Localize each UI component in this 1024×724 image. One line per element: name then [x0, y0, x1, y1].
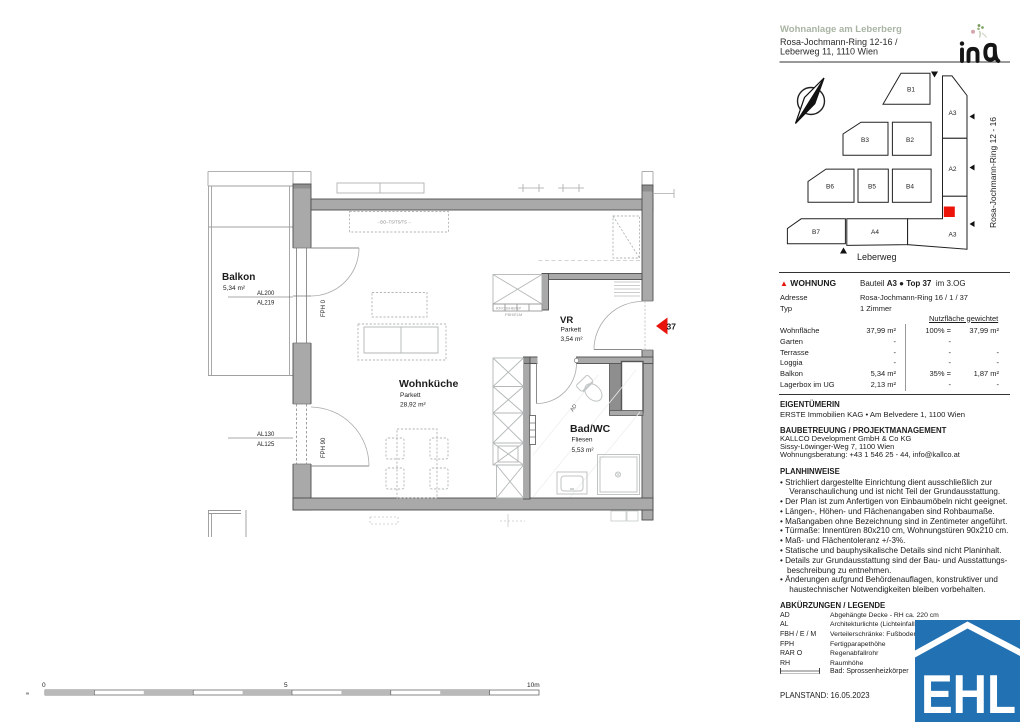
svg-text:B3: B3 [861, 137, 869, 144]
svg-text:Parkett: Parkett [400, 392, 421, 399]
svg-text:Balkon: Balkon [222, 272, 255, 283]
svg-text:A3: A3 [949, 110, 957, 117]
svg-text:5: 5 [284, 682, 288, 689]
svg-text:FBH/E1M: FBH/E1M [505, 312, 522, 317]
svg-text:37: 37 [667, 322, 677, 332]
svg-text:FPH 90: FPH 90 [321, 437, 327, 458]
svg-text:B5: B5 [868, 184, 876, 191]
svg-text:Rosa-Jochmann-Ring 12 - 16: Rosa-Jochmann-Ring 12 - 16 [988, 117, 998, 228]
svg-text:Parkett: Parkett [561, 327, 582, 334]
svg-text:FPH 0: FPH 0 [321, 299, 327, 317]
svg-text:Wohnanlage am Leberberg: Wohnanlage am Leberberg [780, 24, 902, 35]
svg-text:AL200: AL200 [257, 291, 275, 297]
svg-text:AL130: AL130 [257, 432, 275, 438]
svg-text:AL219: AL219 [257, 301, 275, 307]
svg-text:A2: A2 [949, 166, 957, 173]
svg-text:VR: VR [560, 315, 573, 326]
svg-text:10m: 10m [527, 682, 540, 689]
svg-text:Fliesen: Fliesen [572, 437, 593, 444]
svg-text:Bad/WC: Bad/WC [570, 423, 611, 435]
svg-text:B6: B6 [826, 184, 834, 191]
svg-text:Leberweg: Leberweg [857, 252, 897, 262]
svg-text:A4: A4 [871, 229, 879, 236]
svg-text:3,54 m²: 3,54 m² [561, 336, 584, 343]
svg-text:A3: A3 [949, 232, 957, 239]
svg-text:28,92 m²: 28,92 m² [400, 402, 426, 409]
svg-text:5,53 m²: 5,53 m² [572, 447, 595, 454]
svg-text:→BO–TS/TS/TS→: →BO–TS/TS/TS→ [376, 220, 411, 225]
svg-text:B7: B7 [812, 229, 820, 236]
svg-text:Leberweg 11, 1110 Wien: Leberweg 11, 1110 Wien [780, 47, 878, 57]
svg-text:AD: AD [570, 403, 579, 413]
svg-text:0: 0 [42, 682, 46, 689]
svg-text:5,34 m²: 5,34 m² [223, 285, 246, 292]
svg-text:AL125: AL125 [257, 442, 275, 448]
svg-text:B2: B2 [906, 137, 914, 144]
svg-text:Wohnküche: Wohnküche [399, 378, 458, 390]
svg-text:B4: B4 [906, 184, 914, 191]
svg-text:KF/GS/HB/SP: KF/GS/HB/SP [496, 306, 521, 311]
svg-text:Rosa-Jochmann-Ring 12-16 /: Rosa-Jochmann-Ring 12-16 / [780, 37, 898, 47]
svg-text:EHL: EHL [921, 663, 1016, 722]
svg-text:B1: B1 [907, 87, 915, 94]
